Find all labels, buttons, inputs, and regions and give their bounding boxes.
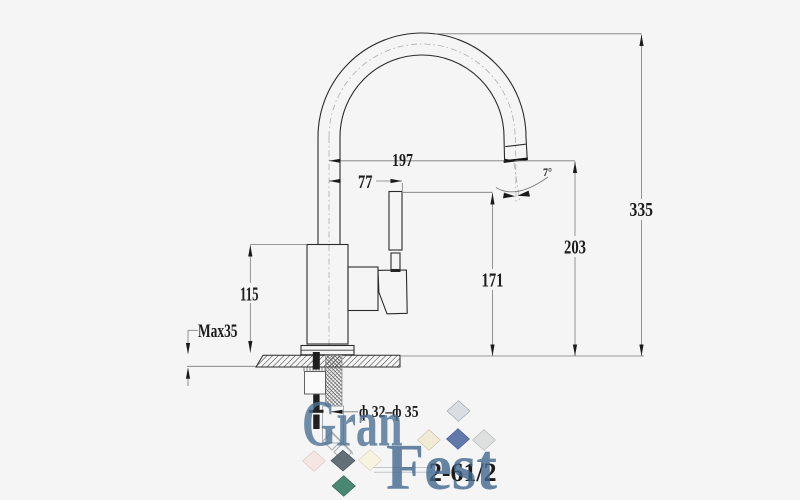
svg-text:197: 197	[392, 150, 413, 170]
svg-text:Fest: Fest	[386, 431, 497, 500]
svg-text:335: 335	[630, 199, 654, 221]
svg-text:171: 171	[482, 270, 504, 292]
svg-text:77: 77	[358, 172, 373, 193]
svg-text:203: 203	[564, 237, 586, 259]
svg-text:7°: 7°	[543, 165, 552, 179]
svg-text:115: 115	[240, 284, 259, 306]
svg-text:Max35: Max35	[198, 321, 238, 342]
